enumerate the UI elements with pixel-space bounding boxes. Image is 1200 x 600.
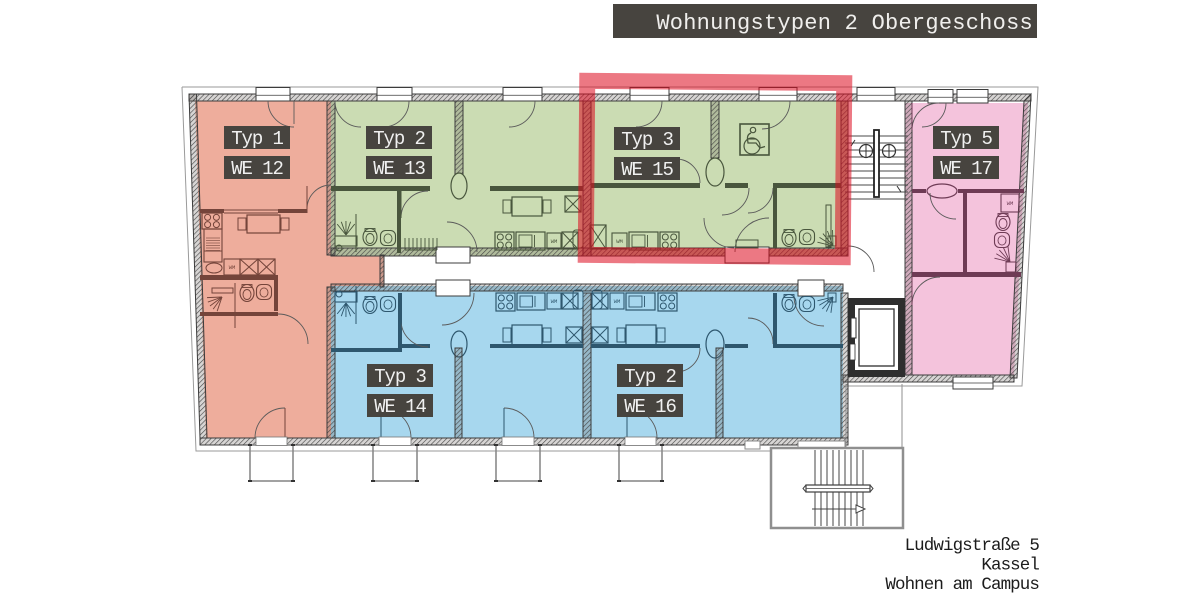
svg-text:WM: WM xyxy=(1007,200,1014,207)
svg-text:WE 16: WE 16 xyxy=(624,396,676,418)
svg-text:Typ 1: Typ 1 xyxy=(231,128,283,150)
svg-text:Kassel: Kassel xyxy=(981,556,1039,576)
svg-text:WM: WM xyxy=(616,238,623,245)
svg-text:Typ 3: Typ 3 xyxy=(374,366,426,388)
svg-text:Typ 2: Typ 2 xyxy=(624,366,676,388)
svg-text:Typ 3: Typ 3 xyxy=(621,129,673,151)
svg-text:WM: WM xyxy=(229,264,236,271)
svg-text:Wohnungstypen 2 Obergeschoss: Wohnungstypen 2 Obergeschoss xyxy=(656,11,1033,36)
svg-text:Ludwigstraße 5: Ludwigstraße 5 xyxy=(905,536,1040,556)
svg-text:WE 12: WE 12 xyxy=(231,158,283,180)
svg-text:WE 14: WE 14 xyxy=(374,396,426,418)
svg-text:WM: WM xyxy=(614,298,621,305)
svg-text:WE 13: WE 13 xyxy=(373,158,425,180)
svg-text:WM: WM xyxy=(551,238,558,245)
svg-text:WE 17: WE 17 xyxy=(940,158,992,180)
svg-text:WM: WM xyxy=(551,298,558,305)
svg-text:Typ 2: Typ 2 xyxy=(373,128,425,150)
svg-text:Typ 5: Typ 5 xyxy=(940,128,992,150)
svg-text:WE 15: WE 15 xyxy=(621,159,673,181)
svg-text:Wohnen am Campus: Wohnen am Campus xyxy=(885,575,1039,595)
